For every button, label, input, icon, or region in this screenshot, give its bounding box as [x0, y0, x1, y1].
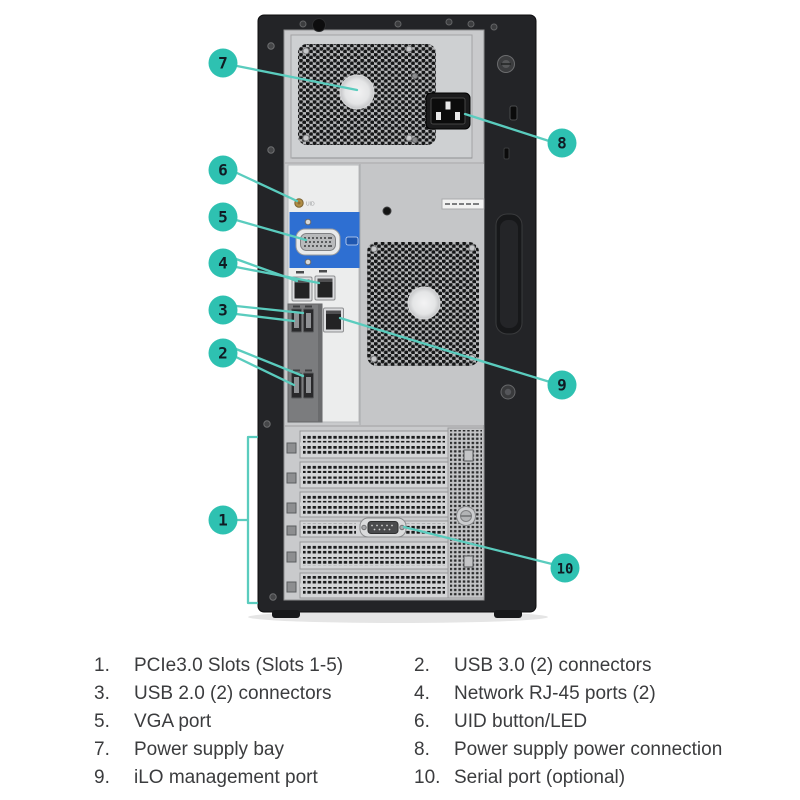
legend-item: 4. Network RJ-45 ports (2) [414, 680, 759, 708]
legend-item: 5. VGA port [94, 708, 399, 736]
legend-item-label: PCIe3.0 Slots (Slots 1-5) [134, 652, 399, 680]
psu-fan-hub [340, 75, 374, 109]
slot-clip-icon [464, 450, 473, 461]
thumbscrew [498, 56, 515, 73]
legend-left-column: 1. PCIe3.0 Slots (Slots 1-5) 3. USB 2.0 … [94, 652, 399, 792]
svg-text:7: 7 [218, 54, 228, 73]
svg-text:6: 6 [218, 161, 228, 180]
svg-text:1: 1 [218, 511, 228, 530]
legend-item: 1. PCIe3.0 Slots (Slots 1-5) [94, 652, 399, 680]
callout-10: 10 [551, 554, 580, 583]
legend-item: 6. UID button/LED [414, 708, 759, 736]
svg-text:3: 3 [218, 301, 228, 320]
legend-item-label: Power supply bay [134, 736, 399, 764]
pcie-slot-cover [300, 542, 448, 569]
power-supply-bay [291, 35, 472, 158]
legend-item: 8. Power supply power connection [414, 736, 759, 764]
svg-text:9: 9 [557, 376, 567, 395]
thumbscrew [457, 507, 476, 526]
legend-item: 3. USB 2.0 (2) connectors [94, 680, 399, 708]
callout-5: 5 [209, 203, 238, 232]
legend-item-label: Serial port (optional) [454, 764, 759, 792]
panel-slot [504, 148, 509, 159]
legend-right-column: 2. USB 3.0 (2) connectors 4. Network RJ-… [414, 652, 759, 792]
svg-text:4: 4 [218, 254, 228, 273]
pcie-slot-cover [300, 462, 448, 488]
legend-item-number: 6. [414, 708, 454, 736]
power-inlet [426, 93, 470, 129]
chassis-foot [272, 610, 300, 618]
legend-item-label: UID button/LED [454, 708, 759, 736]
legend-item-label: iLO management port [134, 764, 399, 792]
legend-item: 10. Serial port (optional) [414, 764, 759, 792]
serial-number-label [442, 199, 484, 209]
legend-item-label: USB 2.0 (2) connectors [134, 680, 399, 708]
svg-text:5: 5 [218, 208, 228, 227]
system-fan-plate [360, 164, 484, 425]
bracket-1 [237, 437, 257, 603]
monitor-icon [346, 237, 358, 245]
release-button [383, 207, 391, 215]
legend-item: 9. iLO management port [94, 764, 399, 792]
svg-text:2: 2 [218, 344, 228, 363]
server-rear-figure: UID [0, 0, 800, 648]
pcie-slot-cover [300, 573, 448, 598]
legend-item-number: 7. [94, 736, 134, 764]
uid-label: UID [306, 202, 315, 208]
screw [501, 385, 515, 399]
nic-port-2 [315, 276, 335, 300]
legend-item-number: 10. [414, 764, 454, 792]
legend-item-number: 5. [94, 708, 134, 736]
callout-6: 6 [209, 156, 238, 185]
legend-item-label: VGA port [134, 708, 399, 736]
usb2-port-2 [304, 309, 314, 332]
legend-item-label: Network RJ-45 ports (2) [454, 680, 759, 708]
callout-7: 7 [209, 49, 238, 78]
legend-item-label: USB 3.0 (2) connectors [454, 652, 759, 680]
pcie-retention-strip [448, 428, 484, 598]
legend-item-number: 4. [414, 680, 454, 708]
legend-item-label: Power supply power connection [454, 736, 759, 764]
legend-item-number: 1. [94, 652, 134, 680]
chassis-foot [494, 610, 522, 618]
legend-item-number: 9. [94, 764, 134, 792]
usb3-port-2 [304, 373, 314, 398]
svg-text:10: 10 [557, 562, 574, 578]
system-fan-hub [408, 287, 440, 319]
server-rear-diagram: UID [0, 0, 800, 800]
legend-item: 2. USB 3.0 (2) connectors [414, 652, 759, 680]
ilo-port [324, 308, 344, 332]
legend-item-number: 3. [94, 680, 134, 708]
legend-item-number: 8. [414, 736, 454, 764]
callout-8: 8 [548, 129, 577, 158]
svg-text:8: 8 [557, 134, 567, 153]
slot-clip-icon [464, 556, 473, 567]
legend-item: 7. Power supply bay [94, 736, 399, 764]
pcie-slot-cover [300, 431, 448, 458]
callout-2: 2 [209, 339, 238, 368]
serial-port [360, 518, 406, 537]
callout-9: 9 [548, 371, 577, 400]
pcie-slot-cover [300, 492, 448, 517]
callout-1: 1 [209, 506, 238, 535]
callout-4: 4 [209, 249, 238, 278]
kensington-slot [510, 106, 517, 120]
io-panel: UID [288, 165, 360, 422]
callout-3: 3 [209, 296, 238, 325]
legend-item-number: 2. [414, 652, 454, 680]
